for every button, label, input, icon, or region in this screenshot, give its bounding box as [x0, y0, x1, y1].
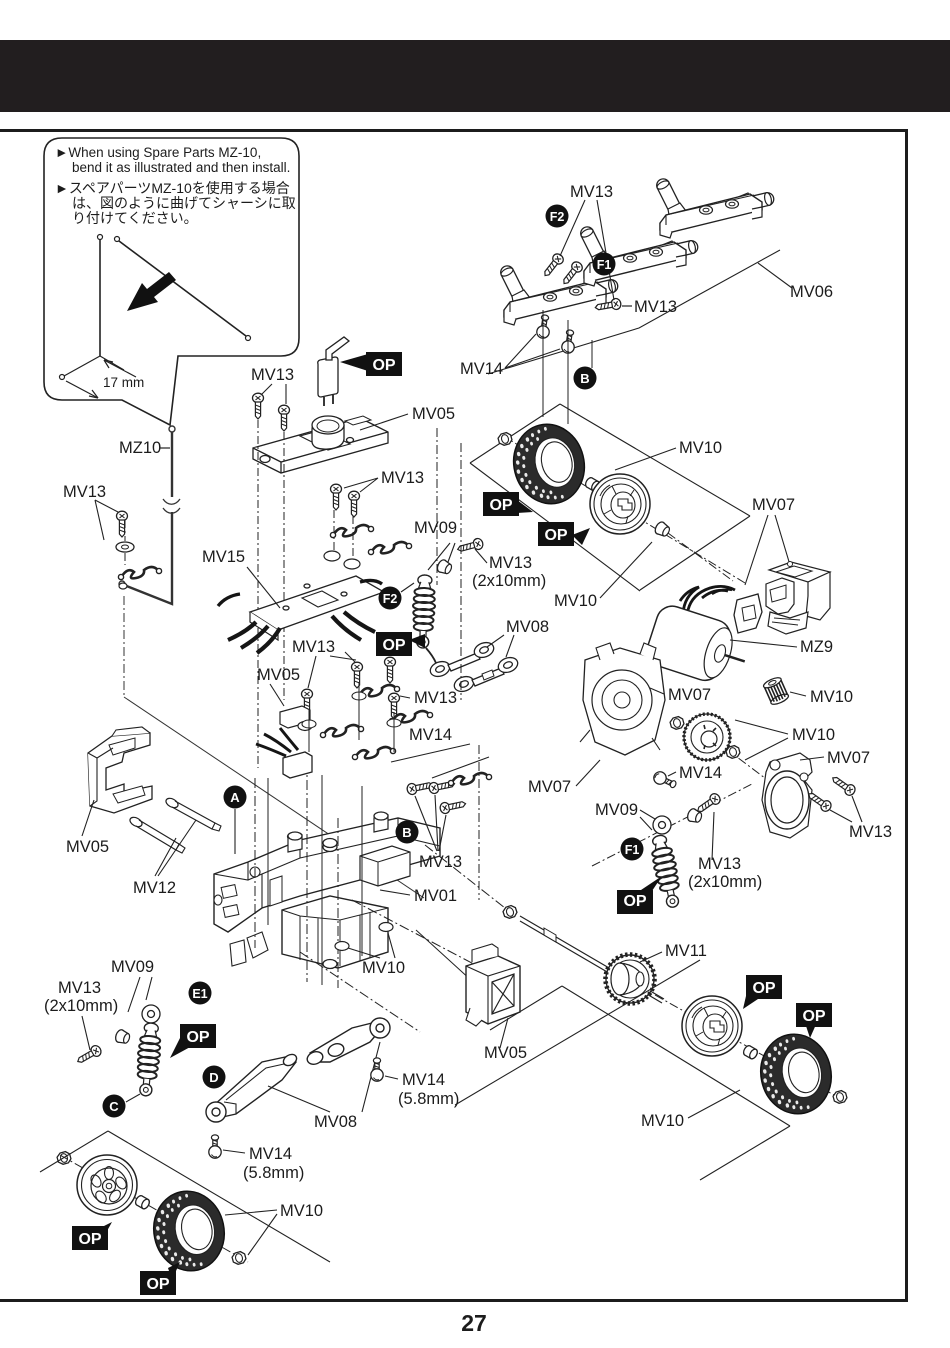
svg-text:F1: F1 — [597, 258, 612, 272]
svg-text:MV08: MV08 — [506, 618, 549, 636]
svg-text:MV10: MV10 — [810, 688, 853, 706]
svg-text:MV13: MV13 — [292, 638, 335, 656]
svg-text:MV01: MV01 — [414, 887, 457, 905]
svg-text:MV07: MV07 — [668, 686, 711, 704]
svg-text:B: B — [402, 825, 411, 840]
svg-text:MV07: MV07 — [752, 496, 795, 514]
svg-text:D: D — [209, 1070, 218, 1085]
svg-text:(5.8mm): (5.8mm) — [398, 1090, 459, 1108]
svg-text:OP: OP — [802, 1008, 825, 1025]
svg-text:B: B — [580, 371, 589, 386]
svg-text:MV07: MV07 — [528, 778, 571, 796]
svg-text:MV06: MV06 — [790, 283, 833, 301]
svg-text:MV10: MV10 — [679, 439, 722, 457]
svg-text:MV13: MV13 — [251, 366, 294, 384]
svg-text:MV05: MV05 — [484, 1044, 527, 1062]
svg-text:OP: OP — [78, 1231, 101, 1248]
svg-text:MV07: MV07 — [827, 749, 870, 767]
svg-text:MV13: MV13 — [489, 554, 532, 572]
svg-text:MV12: MV12 — [133, 879, 176, 897]
svg-text:F2: F2 — [383, 592, 398, 606]
svg-text:(2x10mm): (2x10mm) — [688, 873, 762, 891]
svg-text:MV13: MV13 — [634, 298, 677, 316]
svg-text:►スペアパーツMZ-10を使用する場合: ►スペアパーツMZ-10を使用する場合 — [55, 180, 290, 196]
svg-text:は、図のように曲げてシャーシに取: は、図のように曲げてシャーシに取 — [72, 195, 296, 211]
svg-text:MV09: MV09 — [414, 519, 457, 537]
svg-text:OP: OP — [186, 1029, 209, 1046]
svg-text:17 mm: 17 mm — [103, 375, 144, 390]
svg-text:MZ9: MZ9 — [800, 638, 833, 656]
svg-text:OP: OP — [623, 893, 646, 910]
svg-text:MV13: MV13 — [849, 823, 892, 841]
svg-text:MZ10: MZ10 — [119, 439, 161, 457]
svg-text:►When using Spare Parts MZ-10,: ►When using Spare Parts MZ-10, — [55, 145, 261, 160]
svg-text:MV13: MV13 — [414, 689, 457, 707]
svg-text:E1: E1 — [192, 987, 207, 1001]
svg-text:MV10: MV10 — [280, 1202, 323, 1220]
svg-text:MV05: MV05 — [257, 666, 300, 684]
svg-text:MV13: MV13 — [58, 979, 101, 997]
svg-text:MV13: MV13 — [63, 483, 106, 501]
svg-text:C: C — [109, 1099, 119, 1114]
svg-text:OP: OP — [372, 357, 395, 374]
svg-text:MV13: MV13 — [419, 853, 462, 871]
svg-text:OP: OP — [382, 637, 405, 654]
svg-text:MV09: MV09 — [595, 801, 638, 819]
svg-text:bend it as illustrated and the: bend it as illustrated and then install. — [72, 160, 290, 175]
svg-text:MV14: MV14 — [460, 360, 503, 378]
svg-text:MV13: MV13 — [698, 855, 741, 873]
svg-text:F2: F2 — [550, 210, 565, 224]
svg-text:OP: OP — [489, 497, 512, 514]
svg-text:MV13: MV13 — [570, 183, 613, 201]
svg-text:り付けてください。: り付けてください。 — [72, 210, 198, 226]
svg-text:(2x10mm): (2x10mm) — [472, 572, 546, 590]
svg-text:27: 27 — [461, 1310, 487, 1336]
svg-text:MV13: MV13 — [381, 469, 424, 487]
svg-text:MV14: MV14 — [409, 726, 452, 744]
svg-text:(2x10mm): (2x10mm) — [44, 997, 118, 1015]
svg-text:OP: OP — [544, 527, 567, 544]
svg-text:MV05: MV05 — [412, 405, 455, 423]
svg-text:(5.8mm): (5.8mm) — [243, 1164, 304, 1182]
svg-text:F1: F1 — [625, 843, 640, 857]
svg-text:MV10: MV10 — [554, 592, 597, 610]
svg-text:MV14: MV14 — [402, 1071, 445, 1089]
svg-text:MV10: MV10 — [792, 726, 835, 744]
svg-text:MV05: MV05 — [66, 838, 109, 856]
svg-text:MV10: MV10 — [641, 1112, 684, 1130]
svg-text:MV15: MV15 — [202, 548, 245, 566]
svg-text:MV09: MV09 — [111, 958, 154, 976]
svg-text:MV14: MV14 — [679, 764, 722, 782]
svg-text:OP: OP — [752, 980, 775, 997]
svg-text:A: A — [230, 790, 240, 805]
svg-text:OP: OP — [146, 1276, 169, 1293]
svg-text:MV08: MV08 — [314, 1113, 357, 1131]
svg-text:MV14: MV14 — [249, 1145, 292, 1163]
svg-text:MV11: MV11 — [665, 942, 707, 960]
